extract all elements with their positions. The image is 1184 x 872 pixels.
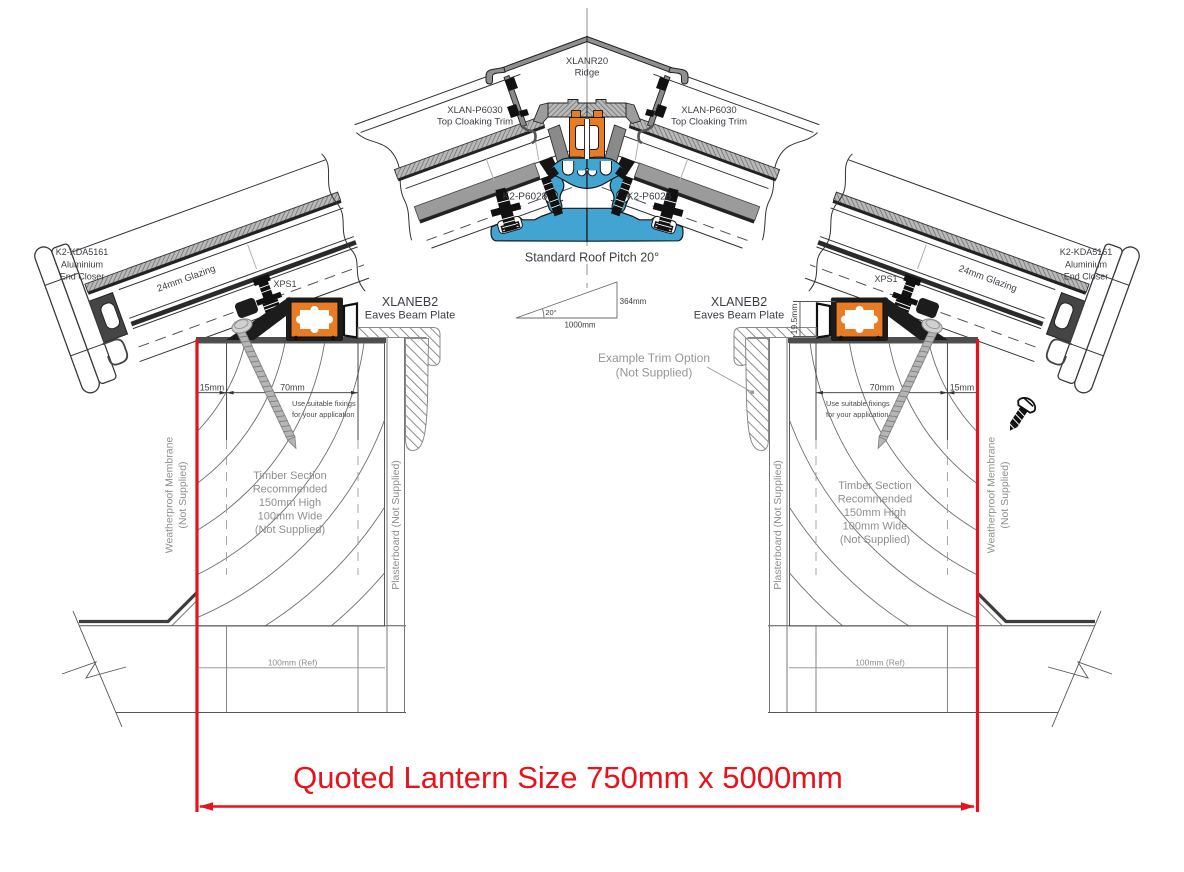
svg-text:Quoted Lantern Size 750mm x 50: Quoted Lantern Size 750mm x 5000mm (293, 760, 843, 795)
svg-text:150mm High: 150mm High (844, 507, 906, 519)
svg-text:1000mm: 1000mm (564, 321, 595, 330)
svg-text:Ridge: Ridge (575, 68, 600, 79)
svg-text:XLANR20: XLANR20 (566, 56, 608, 67)
svg-text:70mm: 70mm (280, 383, 304, 393)
svg-text:K2-P6028: K2-P6028 (627, 192, 672, 203)
svg-text:End Closer: End Closer (60, 272, 105, 282)
svg-text:15mm: 15mm (950, 383, 974, 393)
svg-text:Weatherproof Membrane: Weatherproof Membrane (164, 437, 176, 554)
svg-text:100mm (Ref): 100mm (Ref) (268, 658, 318, 668)
svg-text:Plasterboard (Not Supplied): Plasterboard (Not Supplied) (390, 460, 402, 590)
svg-text:(Not Supplied): (Not Supplied) (255, 524, 325, 536)
svg-text:Plasterboard (Not Supplied): Plasterboard (Not Supplied) (772, 460, 784, 590)
svg-text:XLANEB2: XLANEB2 (382, 295, 438, 309)
svg-text:100mm (Ref): 100mm (Ref) (855, 658, 905, 668)
svg-text:Use suitable fixings: Use suitable fixings (826, 399, 890, 408)
svg-text:XLANEB2: XLANEB2 (711, 295, 767, 309)
svg-text:100mm Wide: 100mm Wide (843, 521, 908, 533)
svg-text:Top Cloaking Trim: Top Cloaking Trim (437, 117, 513, 128)
svg-text:for your application: for your application (826, 410, 888, 419)
svg-text:XLAN-P6030: XLAN-P6030 (681, 105, 736, 116)
svg-text:XPS1: XPS1 (874, 274, 897, 284)
svg-text:Standard Roof Pitch 20°: Standard Roof Pitch 20° (525, 251, 659, 265)
svg-text:Aluminium: Aluminium (61, 260, 103, 270)
svg-text:K2-KDA5161: K2-KDA5161 (1060, 247, 1113, 257)
svg-text:End Closer: End Closer (1064, 272, 1109, 282)
svg-text:(Not Supplied): (Not Supplied) (616, 366, 693, 380)
svg-text:20°: 20° (545, 308, 556, 317)
svg-text:XLAN-P6030: XLAN-P6030 (447, 105, 502, 116)
svg-text:for your application: for your application (292, 410, 354, 419)
svg-text:(Not Supplied): (Not Supplied) (177, 461, 189, 528)
svg-text:XPS1: XPS1 (273, 279, 296, 289)
svg-text:100mm Wide: 100mm Wide (258, 511, 323, 523)
svg-text:Weatherproof Membrane: Weatherproof Membrane (986, 437, 998, 554)
svg-text:364mm: 364mm (620, 297, 647, 306)
svg-text:K2-KDA5161: K2-KDA5161 (56, 247, 109, 257)
svg-text:(Not Supplied): (Not Supplied) (999, 461, 1011, 528)
svg-text:K2-P6028: K2-P6028 (503, 192, 548, 203)
svg-text:(Not Supplied): (Not Supplied) (840, 534, 910, 546)
svg-text:15mm: 15mm (200, 383, 224, 393)
svg-text:150mm High: 150mm High (259, 497, 321, 509)
svg-text:Recommended: Recommended (838, 494, 913, 506)
svg-text:19.5mm: 19.5mm (789, 304, 799, 335)
svg-text:Eaves Beam Plate: Eaves Beam Plate (694, 310, 785, 322)
svg-text:Use suitable fixings: Use suitable fixings (292, 399, 356, 408)
svg-text:Timber Section: Timber Section (838, 480, 912, 492)
svg-text:Timber Section: Timber Section (253, 470, 327, 482)
svg-text:Recommended: Recommended (253, 484, 328, 496)
svg-text:Top Cloaking Trim: Top Cloaking Trim (671, 117, 747, 128)
svg-text:Eaves Beam Plate: Eaves Beam Plate (365, 310, 456, 322)
svg-text:Aluminium: Aluminium (1065, 260, 1107, 270)
svg-text:Example Trim Option: Example Trim Option (598, 351, 710, 365)
svg-text:70mm: 70mm (870, 383, 894, 393)
